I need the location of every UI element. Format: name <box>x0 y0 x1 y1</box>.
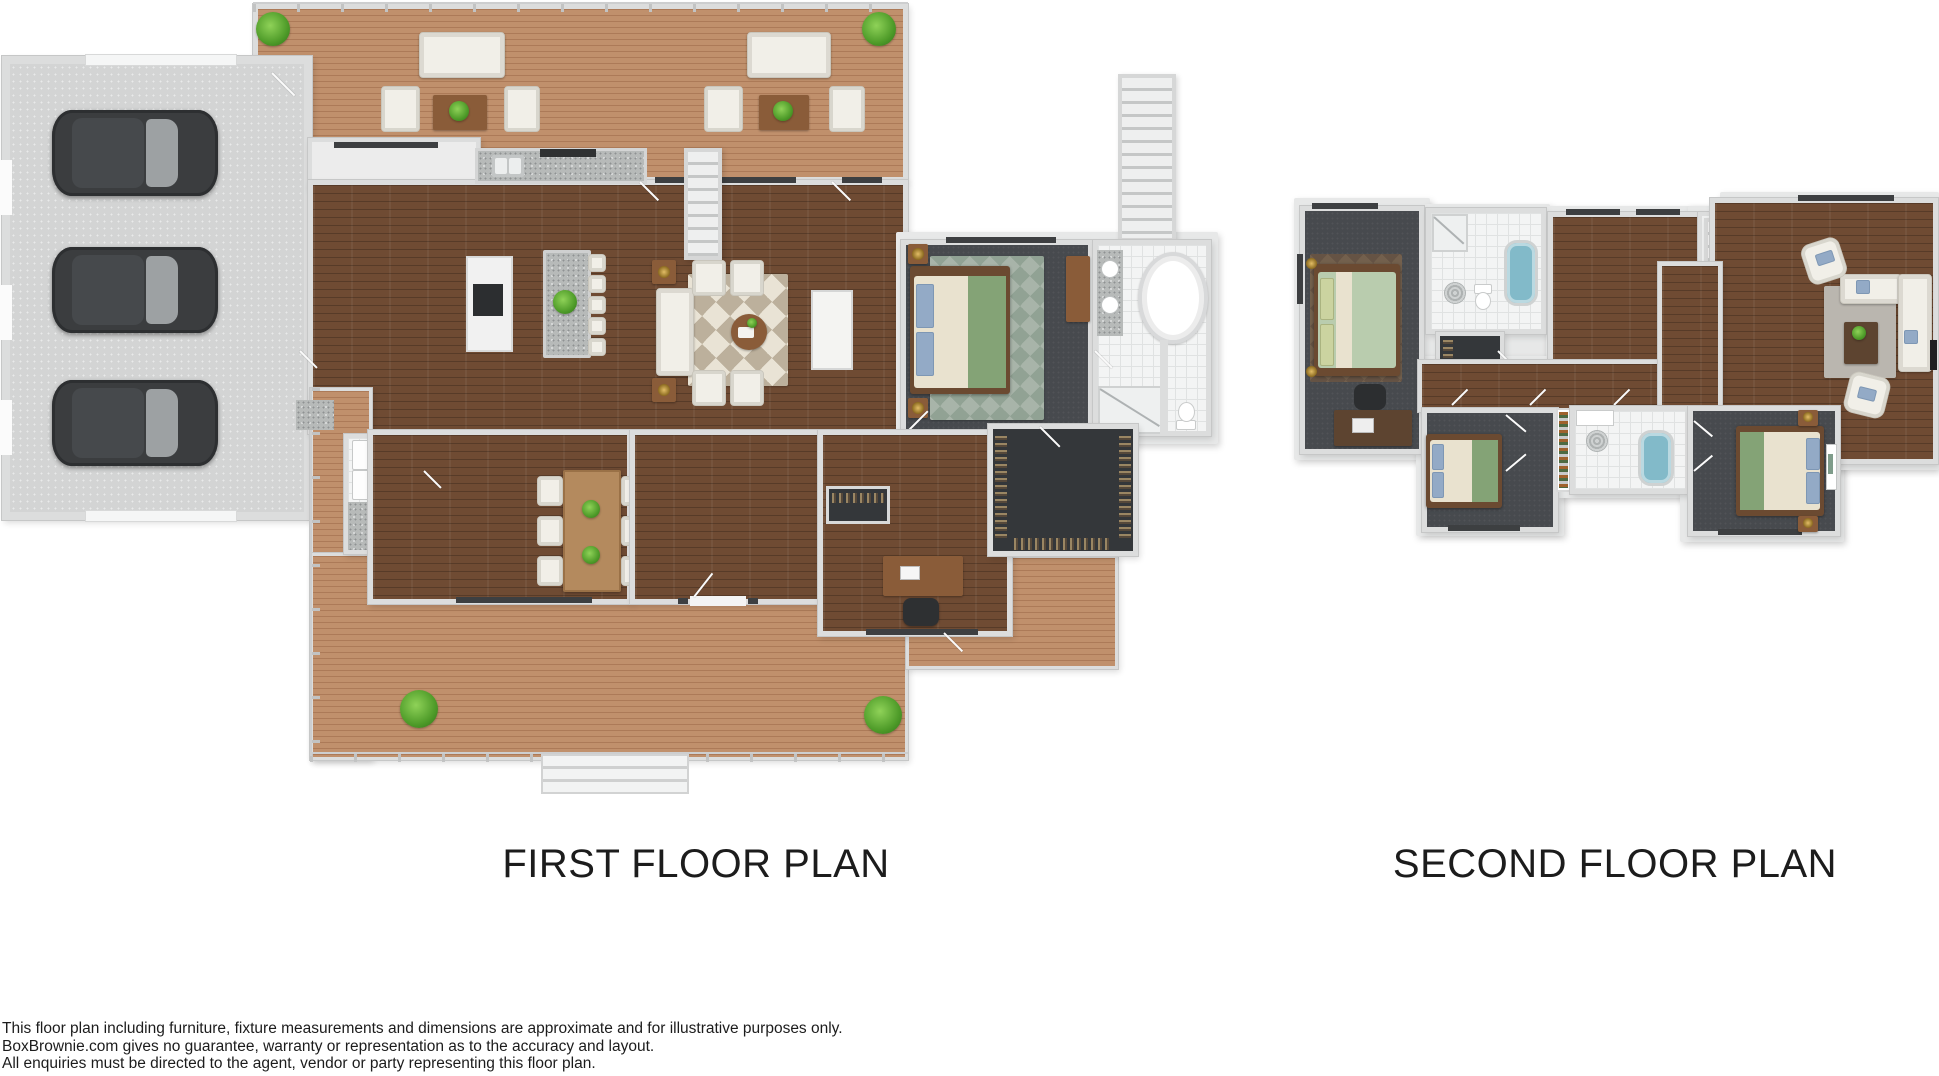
disclaimer-line-1: This floor plan including furniture, fix… <box>2 1020 902 1038</box>
bathtub <box>1504 240 1538 306</box>
pillow <box>1806 472 1820 504</box>
sitting-room-extension <box>1658 262 1722 414</box>
toilet-icon <box>1475 292 1491 310</box>
second-floor-title: SECOND FLOOR PLAN <box>1295 842 1935 887</box>
disclaimer-line-2: BoxBrownie.com gives no guarantee, warra… <box>2 1038 902 1056</box>
pillow <box>1320 278 1334 320</box>
floor-plan-image: FIRST FLOOR PLAN SECOND FLOOR PLAN This … <box>0 0 1939 1076</box>
disclaimer-line-3: All enquiries must be directed to the ag… <box>2 1055 902 1073</box>
tv-icon <box>1930 340 1937 370</box>
window <box>1448 525 1520 531</box>
window <box>1297 254 1303 304</box>
sectional-sofa <box>1898 274 1932 372</box>
window <box>1312 203 1378 209</box>
bed-blanket <box>1472 440 1498 502</box>
window <box>1636 209 1680 215</box>
pillow <box>1320 324 1334 366</box>
pillow <box>1904 330 1918 344</box>
window <box>1566 209 1620 215</box>
window <box>1718 529 1802 535</box>
disclaimer: This floor plan including furniture, fix… <box>2 1020 902 1073</box>
artwork-detail <box>1828 454 1833 474</box>
lamp-icon <box>1306 258 1317 269</box>
sectional-sofa <box>1840 274 1902 304</box>
first-floor-title: FIRST FLOOR PLAN <box>376 842 1016 887</box>
bath-mat <box>1586 430 1608 452</box>
bed-fold <box>1336 272 1352 368</box>
bathtub <box>1638 430 1674 486</box>
bed-blanket <box>1740 432 1764 510</box>
pillow <box>1432 444 1444 470</box>
lamp-icon <box>1803 412 1813 422</box>
vanity <box>1576 410 1614 426</box>
pillow <box>1806 438 1820 470</box>
lamp-icon <box>1803 518 1813 528</box>
window <box>1798 195 1894 201</box>
lamp-icon <box>1306 366 1317 377</box>
laptop-icon <box>1352 418 1374 433</box>
shelf-items <box>1559 412 1568 488</box>
table-plant-icon <box>1852 326 1866 340</box>
desk-chair <box>1354 384 1386 410</box>
second-floor-plan <box>0 0 1939 800</box>
pillow <box>1856 280 1870 294</box>
pillow <box>1432 472 1444 498</box>
bath-mat <box>1444 282 1466 304</box>
